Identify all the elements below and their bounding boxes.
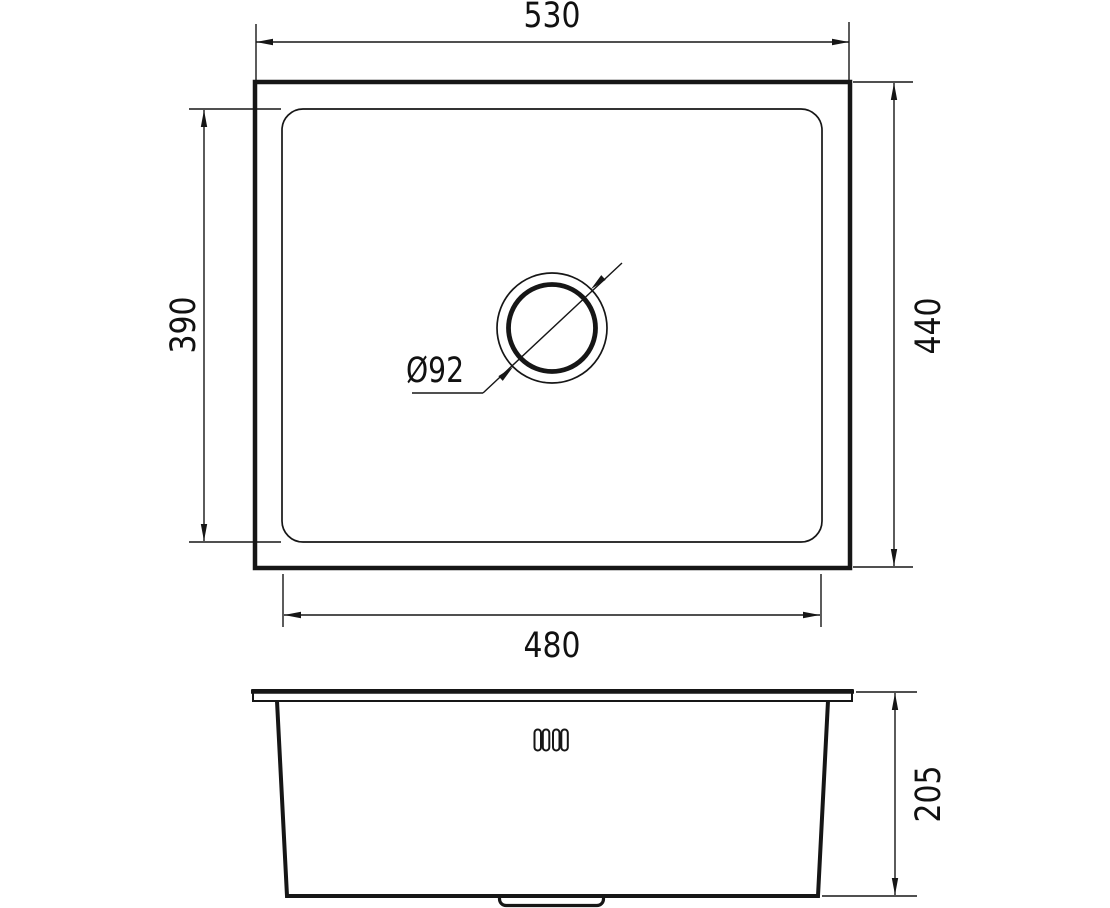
dim-480-label: 480 bbox=[524, 626, 581, 666]
arrowhead bbox=[201, 110, 207, 127]
arrowhead bbox=[201, 524, 207, 541]
dim-530-label: 530 bbox=[524, 0, 581, 36]
sink-bowl-rect bbox=[282, 109, 822, 542]
dim-205: 205 bbox=[822, 692, 949, 896]
arrowhead bbox=[892, 693, 898, 710]
arrowhead bbox=[256, 39, 273, 45]
side-view: 205 bbox=[251, 690, 949, 906]
dim-440-label: 440 bbox=[909, 298, 949, 355]
dim-530: 530 bbox=[256, 0, 849, 80]
dim-drain-diameter: Ø92 bbox=[406, 263, 622, 393]
sink-outer-rect bbox=[255, 82, 850, 568]
dim-440: 440 bbox=[853, 82, 949, 567]
dim-205-label: 205 bbox=[909, 766, 949, 823]
arrowhead bbox=[892, 878, 898, 895]
arrowhead bbox=[891, 83, 897, 100]
arrowhead bbox=[891, 549, 897, 566]
dim-390-label: 390 bbox=[164, 297, 204, 354]
dim-480: 480 bbox=[283, 574, 821, 666]
sink-body bbox=[277, 701, 828, 896]
arrowhead bbox=[803, 612, 820, 618]
dim-drain-diameter-label: Ø92 bbox=[406, 351, 464, 391]
arrowhead bbox=[284, 612, 301, 618]
dim-390: 390 bbox=[164, 109, 281, 542]
sink-technical-drawing: Ø92 530 440 390 bbox=[0, 0, 1110, 908]
top-view: Ø92 530 440 390 bbox=[164, 0, 949, 666]
arrowhead bbox=[832, 39, 849, 45]
